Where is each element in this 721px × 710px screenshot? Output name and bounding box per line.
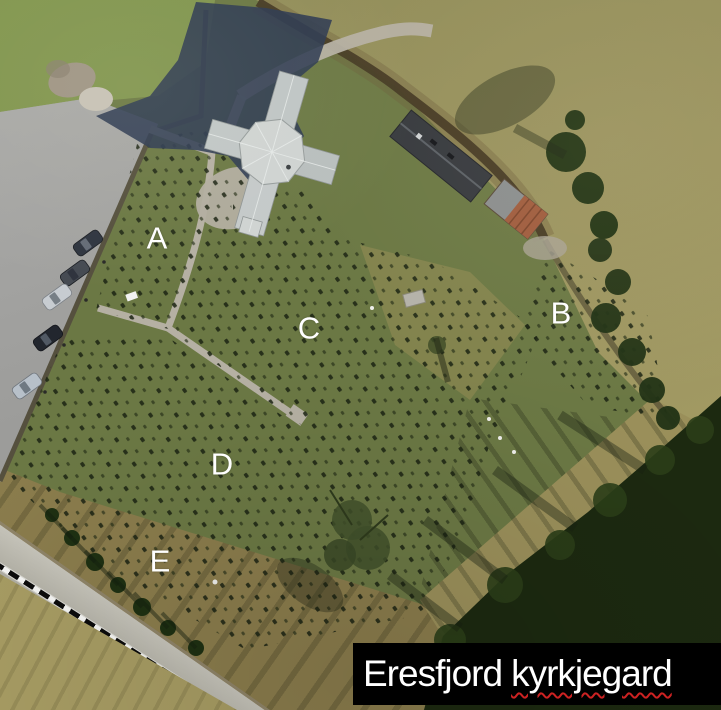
car — [41, 283, 73, 312]
title-text-underlined: kyrkjegard — [511, 653, 672, 695]
section-label-a: A — [147, 223, 168, 254]
title-box: Eresfjord kyrkjegard — [353, 643, 721, 705]
section-label-c: C — [298, 313, 320, 344]
rubble-patch — [523, 236, 567, 260]
aerial-photo: A B C D E Eresfjord kyrkjegard — [0, 0, 721, 710]
section-label-d: D — [211, 449, 233, 480]
title-text-prefix: Eresfjord — [363, 653, 502, 695]
gravel-mound — [44, 57, 113, 111]
scene-detail — [0, 0, 721, 710]
section-label-e: E — [150, 546, 171, 577]
section-label-b: B — [551, 298, 572, 329]
